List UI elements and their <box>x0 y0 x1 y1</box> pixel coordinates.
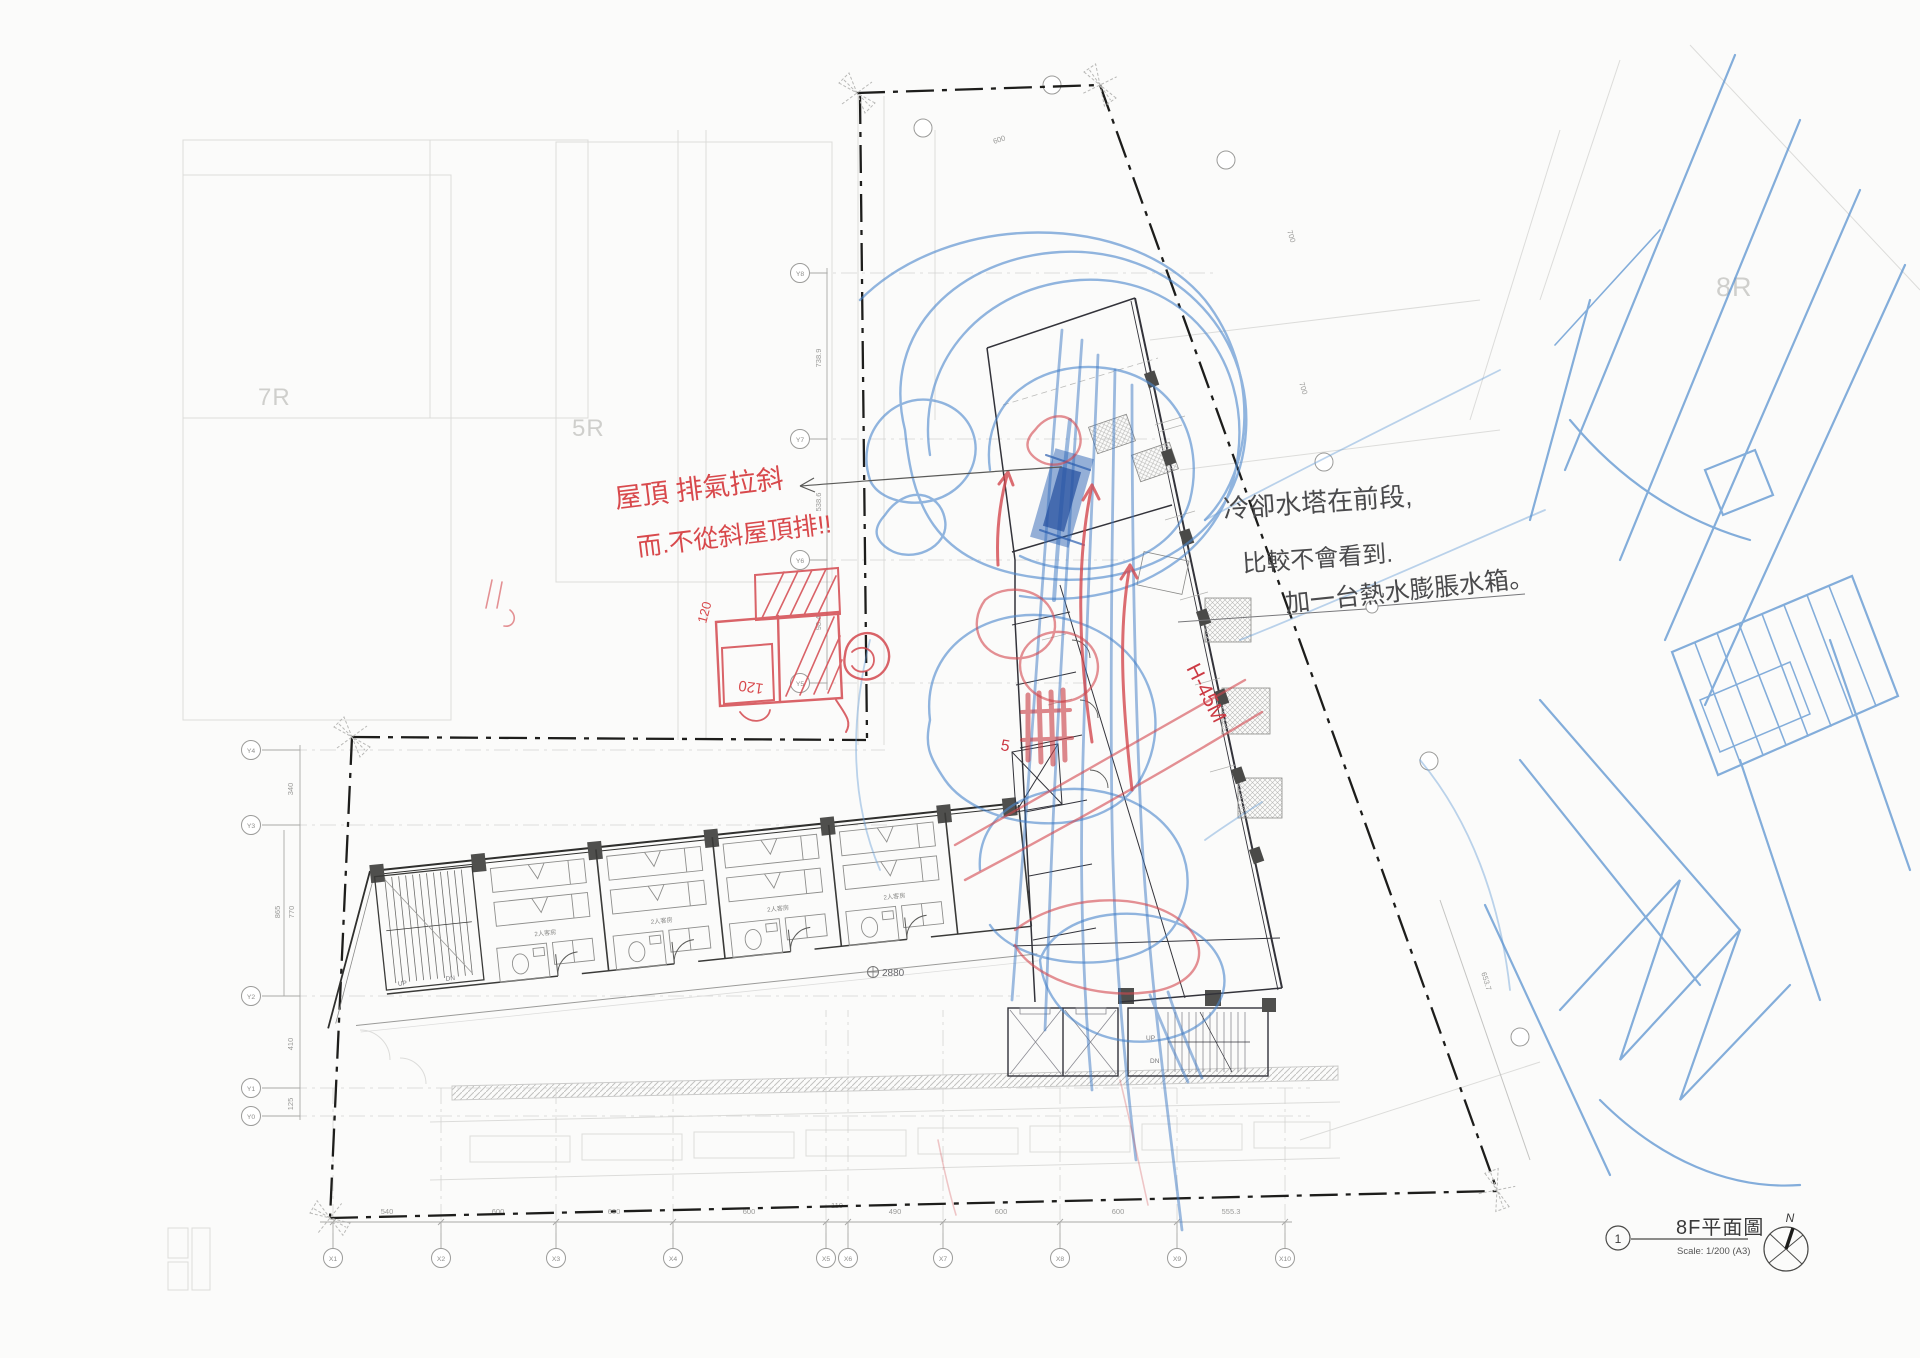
red-dim-a: 120 <box>737 677 764 697</box>
dim-misc: 700 <box>1297 381 1309 396</box>
grid-bubble-label: X3 <box>552 1256 561 1263</box>
dim-y: 538.6 <box>814 493 823 512</box>
dim-x: 540 <box>381 1207 394 1216</box>
grid-bubble-label: Y0 <box>247 1114 256 1121</box>
grid-bubble-label: X5 <box>822 1256 831 1263</box>
north-label: N <box>1786 1211 1795 1225</box>
grid-bubble-label: X2 <box>437 1256 446 1263</box>
block-5r-label: 5R <box>572 415 605 442</box>
dim-y: 410 <box>286 1038 295 1051</box>
black-note-line2: 比較不會看到. <box>1242 541 1394 578</box>
grid-bubbles-x: X1 X2 X3 X4 X5 X6 X7 X8 X9 X10 <box>324 1249 1295 1268</box>
dim-x: 600 <box>995 1207 1008 1216</box>
stair-down-label: DN <box>445 975 455 983</box>
black-note-line1: 冷卻水塔在前段, <box>1222 481 1413 524</box>
grid-bubble-label: X4 <box>669 1256 678 1263</box>
grid-bubbles-diagonal <box>914 76 1529 1046</box>
dim-y: 125 <box>286 1098 295 1111</box>
block-8r-label: 8R <box>1716 272 1753 302</box>
grid-bubble-label: X9 <box>1173 1256 1182 1263</box>
grid-bubble-label: Y4 <box>247 748 256 755</box>
grid-bubble-label: Y2 <box>247 994 256 1001</box>
grid-bubble-label: X1 <box>329 1256 338 1263</box>
sheet-number: 1 <box>1615 1232 1622 1246</box>
sheet-scale: Scale: 1/200 (A3) <box>1677 1246 1750 1257</box>
level-mark-value: 2880 <box>882 968 905 979</box>
grid-bubble-label: Y6 <box>796 558 805 565</box>
survey-corner-markers <box>307 62 1521 1242</box>
grid-bubble-label: Y7 <box>796 437 805 444</box>
guest-room-wing: UP DN <box>312 797 1038 1036</box>
west-staircase <box>375 866 484 990</box>
grid-bubble-label: X7 <box>939 1256 948 1263</box>
dim-misc: 700 <box>1285 229 1297 244</box>
grid-bubble-label: X8 <box>1056 1256 1065 1263</box>
dim-y: 865 <box>273 906 282 919</box>
grid-bubble-label: Y3 <box>247 823 256 830</box>
drawing-canvas: 2人客房 7R 5R 8R <box>0 0 1920 1358</box>
background-block-labels: 7R 5R 8R <box>258 272 1753 442</box>
red-note-line1: 屋頂 排氣拉斜 <box>613 464 785 514</box>
sheet-title: 8F平面圖 <box>1676 1217 1764 1239</box>
red-number: 5 <box>999 737 1011 755</box>
scanned-floor-plan-sheet: 2人客房 7R 5R 8R <box>0 0 1920 1358</box>
red-heavy-marks <box>1022 690 1072 764</box>
grid-bubble-label: X6 <box>844 1256 853 1263</box>
dim-misc: 653.7 <box>1479 971 1493 992</box>
core-stair-down-label: DN <box>1150 1058 1160 1065</box>
dim-x: 600 <box>1112 1207 1125 1216</box>
dim-y: 770 <box>287 906 296 919</box>
dim-y: 340 <box>286 783 295 796</box>
red-detail-sketch <box>486 568 889 732</box>
grid-bubble-label: Y8 <box>796 271 805 278</box>
dim-x: 555.3 <box>1222 1207 1241 1216</box>
block-7r-label: 7R <box>258 384 291 411</box>
title-block: 1 8F平面圖 Scale: 1/200 (A3) N <box>1606 1211 1808 1271</box>
grid-bubble-label: X10 <box>1279 1256 1291 1263</box>
stair-up-label: UP <box>398 980 408 988</box>
red-dim-b: 120 <box>694 600 714 625</box>
grid-bubbles-y-lower: Y0 Y1 Y2 Y3 Y4 <box>242 741 261 1126</box>
level-marker: 2880 <box>867 966 905 979</box>
grid-bubble-label: Y1 <box>247 1086 256 1093</box>
dim-x: 490 <box>889 1207 902 1216</box>
blue-scribble-layer <box>856 55 1910 1230</box>
north-arrow: N <box>1764 1211 1808 1271</box>
property-boundary <box>330 85 1497 1218</box>
blue-freehand-sketch <box>1485 55 1910 1186</box>
dim-y: 738.9 <box>814 349 823 368</box>
grid-bubbles-y-upper: Y5 Y6 Y7 Y8 <box>791 264 810 693</box>
dim-misc: 600 <box>992 133 1007 146</box>
